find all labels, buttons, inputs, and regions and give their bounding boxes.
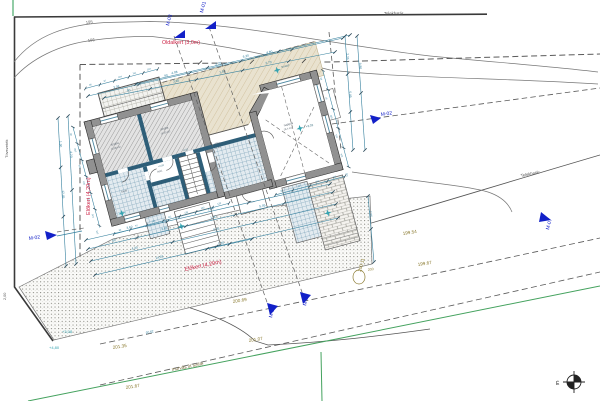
svg-text:Tóvezeték: Tóvezeték bbox=[4, 140, 9, 158]
svg-text:4,20: 4,20 bbox=[69, 151, 73, 158]
svg-text:2,00: 2,00 bbox=[3, 293, 7, 300]
svg-text:Előkert (4,20m): Előkert (4,20m) bbox=[86, 177, 92, 215]
svg-text:196: 196 bbox=[87, 37, 95, 43]
svg-text:2,95: 2,95 bbox=[369, 211, 374, 218]
svg-text:Oldalkert (3,0m): Oldalkert (3,0m) bbox=[162, 40, 200, 46]
svg-text:9,80: 9,80 bbox=[358, 63, 362, 70]
svg-text:12,45: 12,45 bbox=[61, 190, 65, 198]
svg-text:195: 195 bbox=[85, 19, 93, 25]
svg-text:1,90: 1,90 bbox=[58, 141, 62, 148]
svg-text:+4,80: +4,80 bbox=[49, 345, 60, 350]
svg-text:Telekhatár: Telekhatár bbox=[384, 11, 404, 16]
svg-text:2,36: 2,36 bbox=[345, 53, 349, 60]
svg-text:5,45: 5,45 bbox=[348, 91, 352, 98]
svg-text:+3,08: +3,08 bbox=[62, 329, 73, 334]
